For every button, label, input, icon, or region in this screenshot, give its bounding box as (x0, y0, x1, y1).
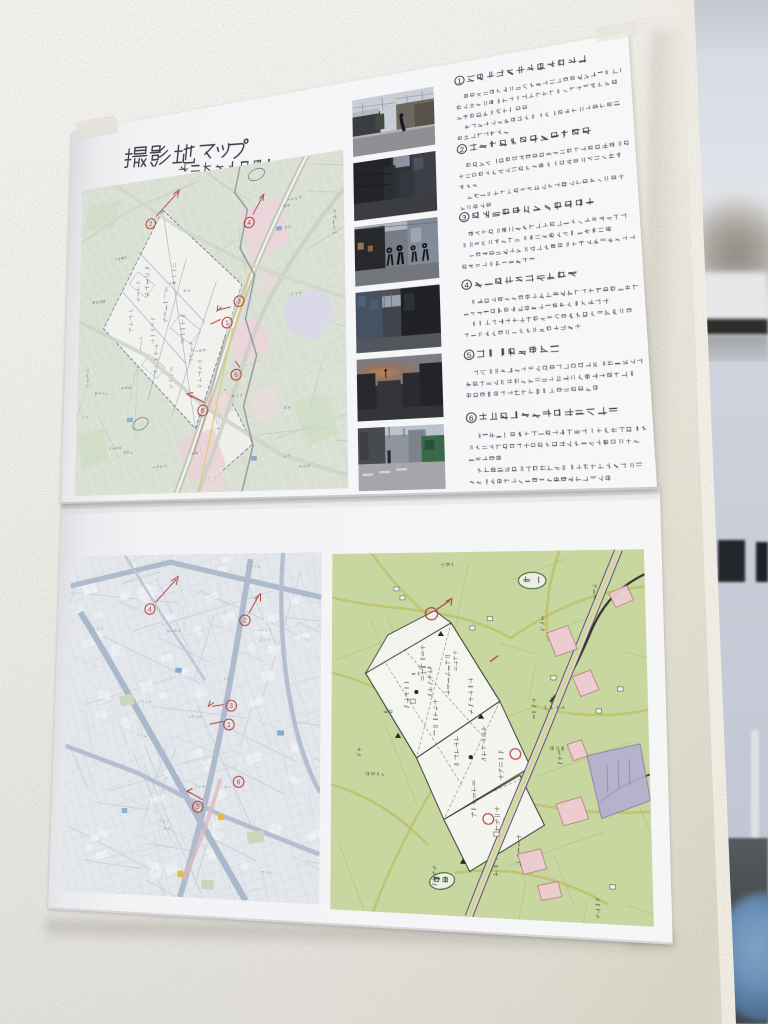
svg-text:4: 4 (464, 282, 470, 290)
svg-text:1: 1 (457, 78, 462, 86)
svg-text:5: 5 (201, 408, 205, 416)
svg-text:4: 4 (247, 220, 251, 228)
svg-text:6: 6 (469, 415, 475, 423)
svg-text:3: 3 (237, 298, 241, 306)
svg-text:5: 5 (467, 352, 473, 360)
svg-text:2: 2 (460, 147, 466, 155)
svg-text:6: 6 (234, 372, 238, 380)
svg-text:3: 3 (462, 215, 468, 223)
svg-text:1: 1 (225, 320, 229, 328)
svg-text:2: 2 (149, 221, 152, 228)
